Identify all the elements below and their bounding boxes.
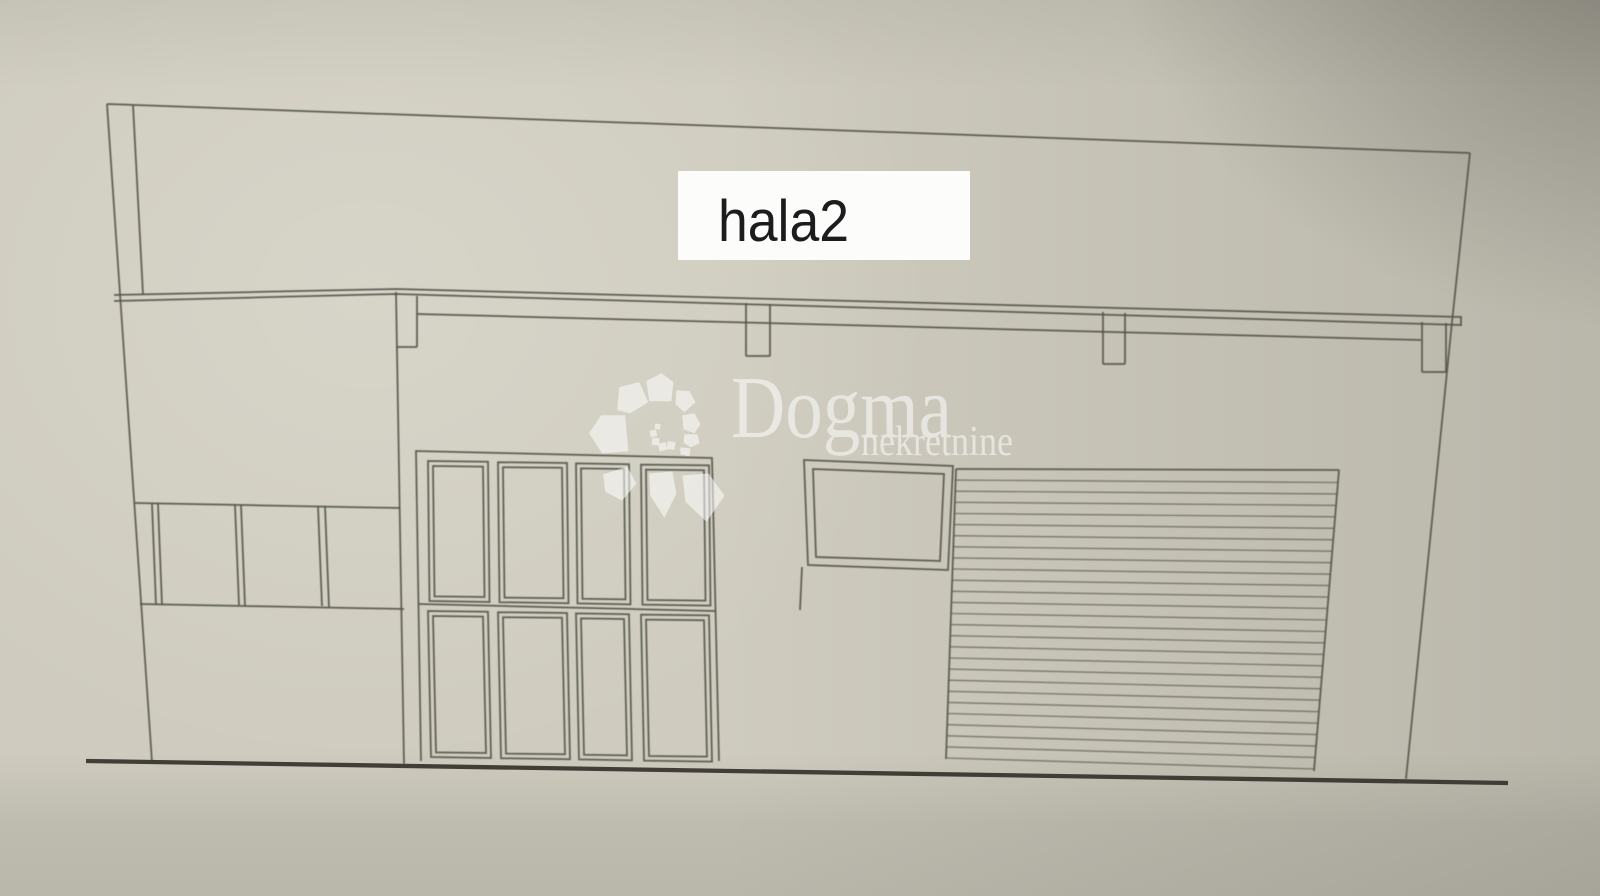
svg-text:hala2: hala2 xyxy=(718,189,849,254)
svg-text:nekretnine: nekretnine xyxy=(861,419,1013,465)
